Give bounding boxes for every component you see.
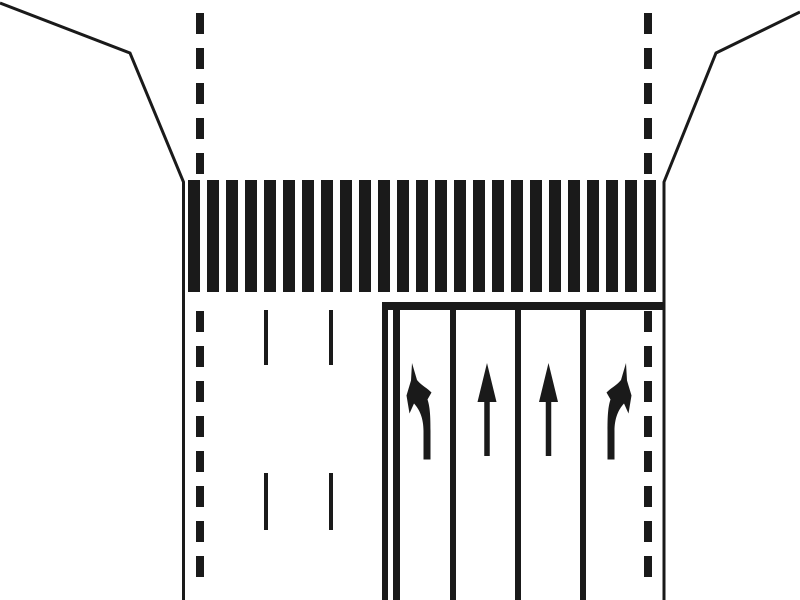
crosswalk-bar [568,180,580,292]
crosswalk-bar [378,180,390,292]
lane-boundary-inner-line [393,302,400,600]
lane-divider [580,310,586,600]
lane-arrow-left-turn [407,363,432,460]
crosswalk-bar [511,180,523,292]
crosswalk-bar [302,180,314,292]
lane-divider [450,310,456,600]
crosswalk-bar [188,180,200,292]
crosswalk-bar [606,180,618,292]
crosswalk-bar [625,180,637,292]
lane-arrow-right-turn [607,363,632,460]
left-road-edge [0,3,184,600]
right-road-edge [664,12,800,600]
road-marking-diagram [0,0,800,600]
crosswalk-bar [283,180,295,292]
crosswalk-bar [416,180,428,292]
crosswalk-bar [226,180,238,292]
crosswalk-bar [473,180,485,292]
lane-arrow-straight [539,363,558,456]
crosswalk-bar [340,180,352,292]
road-marking-figure [0,0,800,600]
crosswalk-bar [207,180,219,292]
crosswalk-bar [530,180,542,292]
crosswalk-bar [435,180,447,292]
crosswalk-bar [492,180,504,292]
opposing-lane-dash [264,310,268,365]
opposing-lane-dash [264,473,268,530]
crosswalk-bar [264,180,276,292]
crosswalk-bar [321,180,333,292]
crosswalk-bar [359,180,371,292]
stop-line [382,302,663,310]
lane-divider [515,310,521,600]
opposing-lane-dash [329,310,333,365]
lane-arrow-straight [478,363,497,456]
opposing-lane-dash [329,473,333,530]
crosswalk-bar [245,180,257,292]
crosswalk-bar [587,180,599,292]
crosswalk-bar [454,180,466,292]
crosswalk-bar [549,180,561,292]
lane-boundary-outer-line [382,302,388,600]
crosswalk-bar [397,180,409,292]
crosswalk-bar [644,180,656,292]
